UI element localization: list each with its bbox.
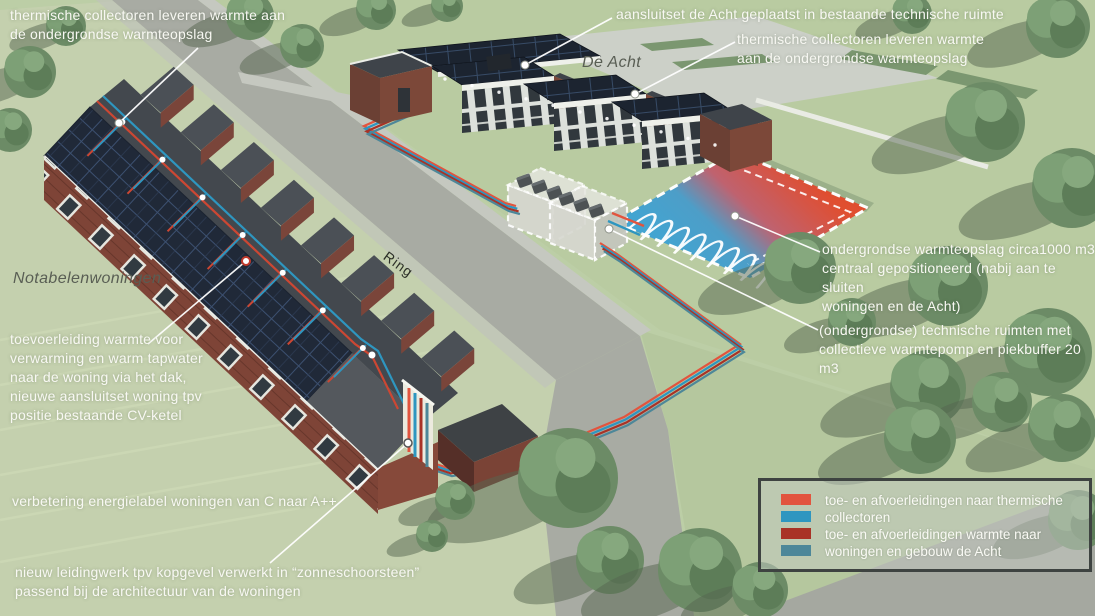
annotation-pipework: nieuw leidingwerk tpv kopgevel verwerkt … xyxy=(15,563,419,601)
legend-item: woningen en gebouw de Acht xyxy=(781,543,1081,560)
legend-swatch-heat-return xyxy=(781,545,811,556)
site-illustration: thermische collectoren leveren warmte aa… xyxy=(0,0,1095,616)
legend-item: collectoren xyxy=(781,509,1081,526)
label-de-acht: De Acht xyxy=(582,54,641,72)
annotation-collectors-right: thermische collectoren leveren warmte aa… xyxy=(737,30,984,68)
legend-swatch-collector-supply xyxy=(781,494,811,505)
legend-label: toe- en afvoerleidingen naar thermische xyxy=(825,492,1063,509)
legend-swatch-collector-return xyxy=(781,511,811,522)
label-notabelenwoningen: Notabelenwoningen xyxy=(13,270,161,288)
legend-label: woningen en gebouw de Acht xyxy=(825,543,1001,560)
annotation-energy-label: verbetering energielabel woningen van C … xyxy=(12,492,337,511)
annotation-storage: ondergrondse warmteopslag circa1000 m3 c… xyxy=(822,240,1095,316)
school-left-block xyxy=(350,52,432,124)
legend-label: toe- en afvoerleidingen warmte naar xyxy=(825,526,1041,543)
annotation-collectors-left: thermische collectoren leveren warmte aa… xyxy=(10,6,285,44)
annotation-aansluitset: aansluitset de Acht geplaatst in bestaan… xyxy=(616,5,1004,24)
annotation-tech-rooms: (ondergrondse) technische ruimten met co… xyxy=(819,321,1095,378)
legend-label: collectoren xyxy=(825,509,890,526)
annotation-supply-line: toevoerleiding warmte voor verwarming en… xyxy=(10,330,203,425)
legend: toe- en afvoerleidingen naar thermische … xyxy=(758,478,1092,572)
legend-item: toe- en afvoerleidingen warmte naar xyxy=(781,526,1081,543)
legend-item: toe- en afvoerleidingen naar thermische xyxy=(781,492,1081,509)
legend-swatch-heat-supply xyxy=(781,528,811,539)
